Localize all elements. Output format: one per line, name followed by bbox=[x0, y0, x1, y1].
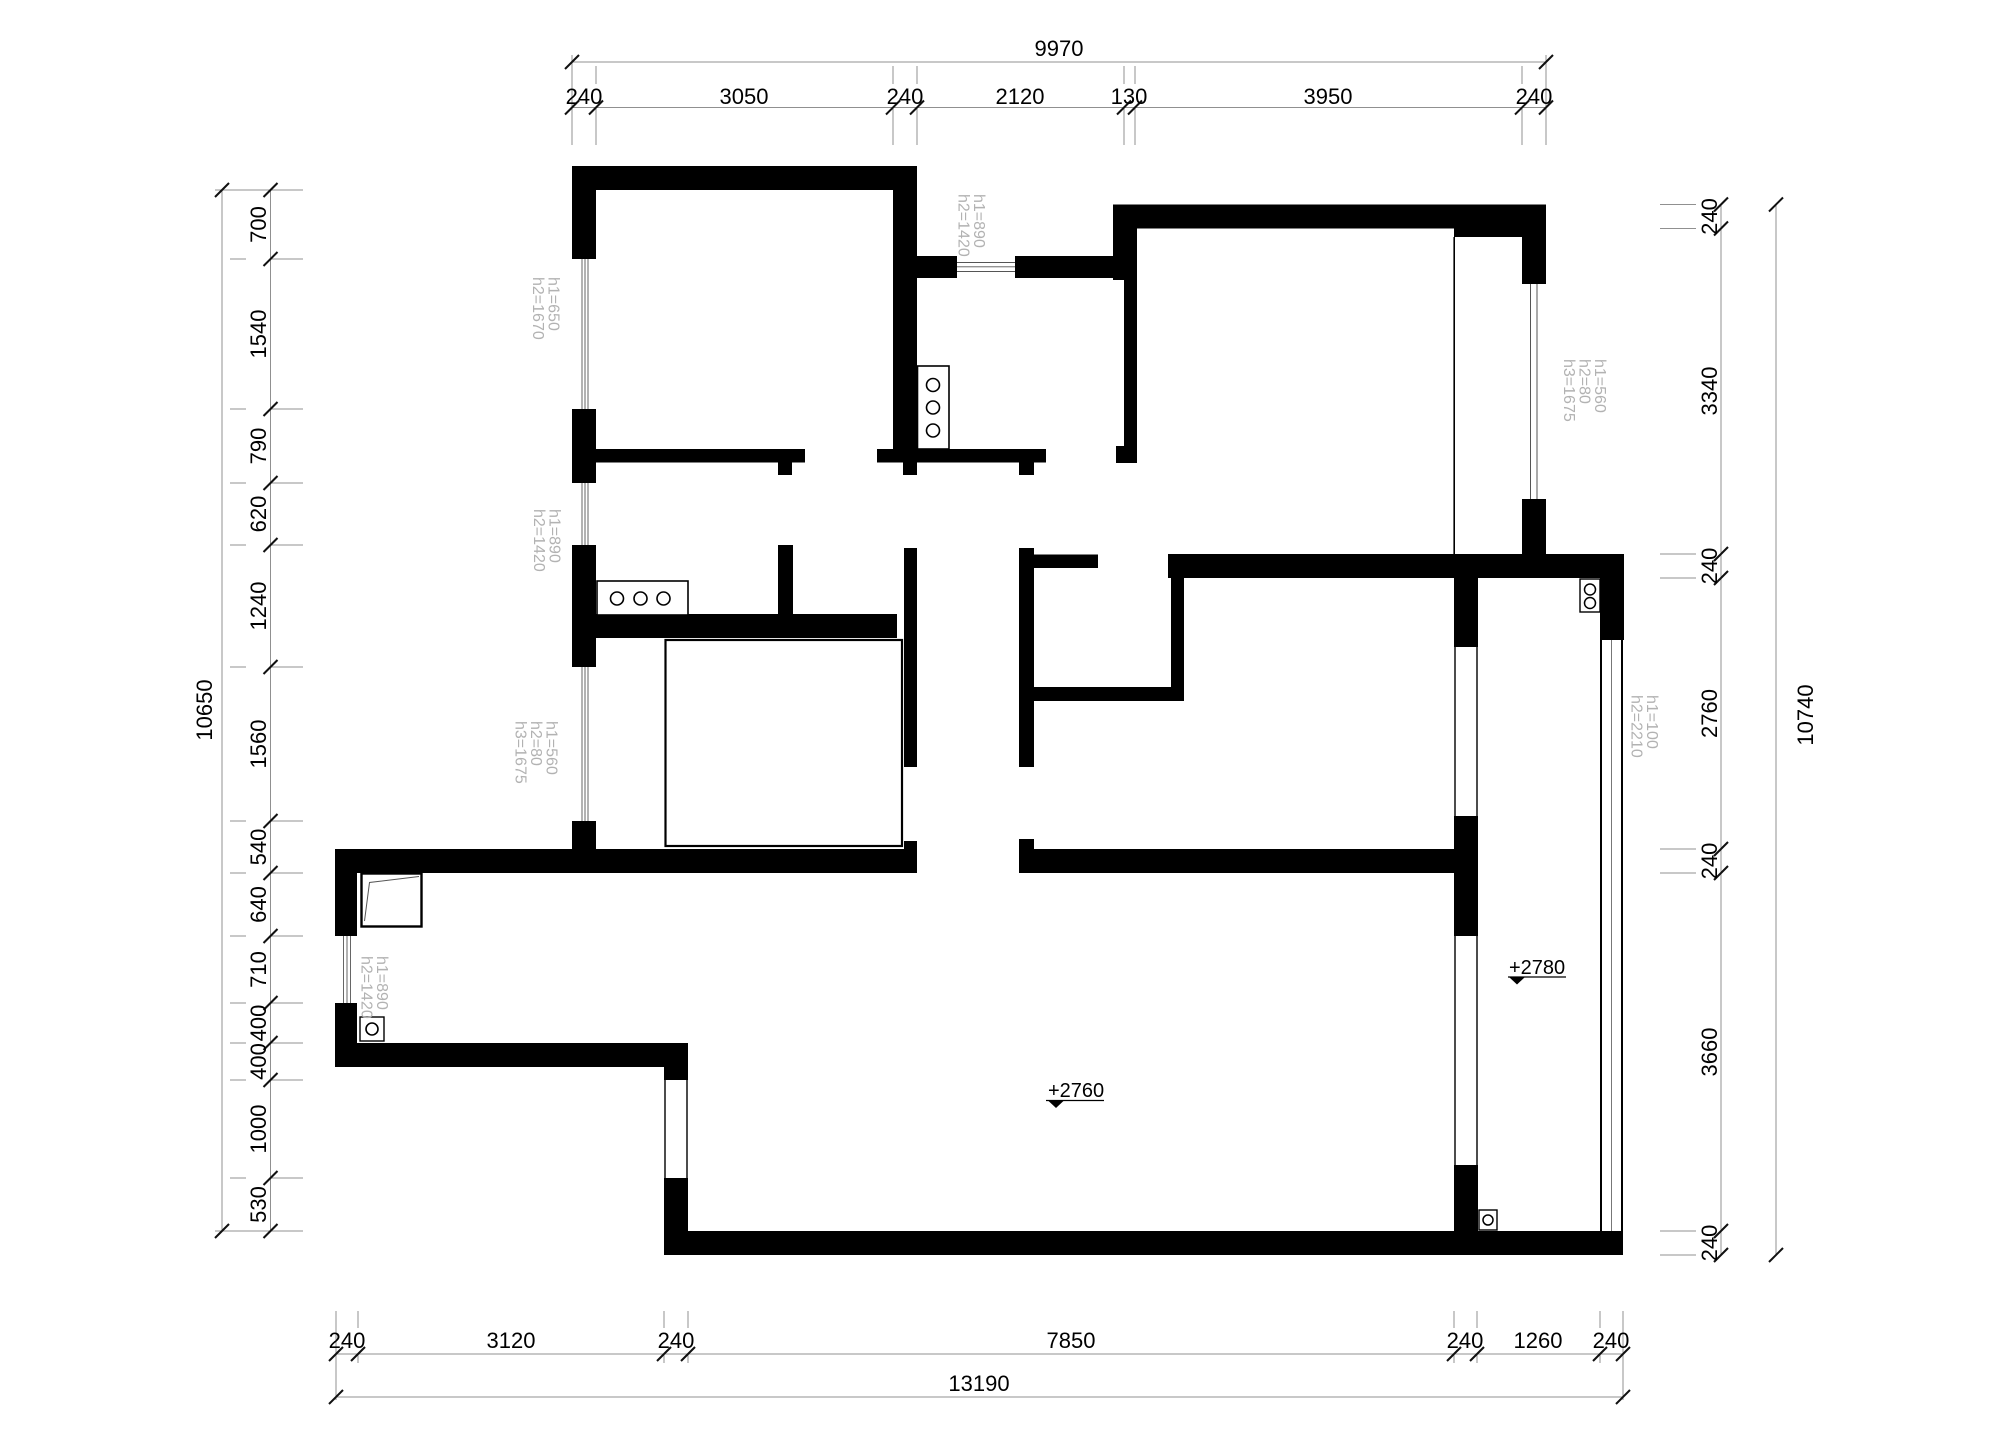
svg-text:790: 790 bbox=[246, 428, 271, 465]
svg-text:1260: 1260 bbox=[1514, 1328, 1563, 1353]
svg-text:620: 620 bbox=[246, 496, 271, 533]
svg-text:+2780: +2780 bbox=[1509, 957, 1565, 979]
svg-text:240: 240 bbox=[329, 1328, 366, 1353]
svg-text:7850: 7850 bbox=[1047, 1328, 1096, 1353]
svg-text:1240: 1240 bbox=[246, 582, 271, 631]
svg-text:400: 400 bbox=[246, 1043, 271, 1080]
svg-text:700: 700 bbox=[246, 206, 271, 243]
svg-text:3340: 3340 bbox=[1697, 367, 1722, 416]
svg-text:540: 540 bbox=[246, 829, 271, 866]
svg-text:240: 240 bbox=[658, 1328, 695, 1353]
svg-text:240: 240 bbox=[1697, 548, 1722, 585]
svg-text:3950: 3950 bbox=[1304, 84, 1353, 109]
svg-text:10650: 10650 bbox=[192, 679, 217, 740]
svg-text:h1=890h2=1420: h1=890h2=1420 bbox=[358, 956, 391, 1019]
svg-text:3050: 3050 bbox=[720, 84, 769, 109]
svg-text:h1=890h2=1420: h1=890h2=1420 bbox=[530, 509, 563, 572]
svg-text:240: 240 bbox=[1697, 1225, 1722, 1262]
svg-text:240: 240 bbox=[1447, 1328, 1484, 1353]
svg-text:240: 240 bbox=[566, 84, 603, 109]
svg-text:h1=890h2=1420: h1=890h2=1420 bbox=[955, 194, 988, 257]
svg-text:10740: 10740 bbox=[1793, 684, 1818, 745]
svg-text:1540: 1540 bbox=[246, 310, 271, 359]
svg-text:h1=100h2=2210: h1=100h2=2210 bbox=[1628, 695, 1661, 758]
svg-text:710: 710 bbox=[246, 951, 271, 988]
svg-text:1000: 1000 bbox=[246, 1105, 271, 1154]
svg-text:240: 240 bbox=[1593, 1328, 1630, 1353]
svg-text:640: 640 bbox=[246, 886, 271, 923]
svg-text:240: 240 bbox=[1697, 843, 1722, 880]
svg-text:2120: 2120 bbox=[996, 84, 1045, 109]
svg-text:240: 240 bbox=[1516, 84, 1553, 109]
svg-text:3120: 3120 bbox=[487, 1328, 536, 1353]
svg-text:240: 240 bbox=[887, 84, 924, 109]
svg-text:+2760: +2760 bbox=[1048, 1080, 1104, 1102]
svg-text:9970: 9970 bbox=[1035, 36, 1084, 61]
svg-text:240: 240 bbox=[1697, 198, 1722, 235]
svg-text:400: 400 bbox=[246, 1005, 271, 1042]
svg-text:130: 130 bbox=[1111, 84, 1148, 109]
svg-text:530: 530 bbox=[246, 1186, 271, 1223]
svg-text:13190: 13190 bbox=[948, 1371, 1009, 1396]
svg-text:2760: 2760 bbox=[1697, 689, 1722, 738]
svg-text:h1=650h2=1670: h1=650h2=1670 bbox=[529, 277, 562, 340]
svg-text:3660: 3660 bbox=[1697, 1028, 1722, 1077]
svg-text:1560: 1560 bbox=[246, 720, 271, 769]
